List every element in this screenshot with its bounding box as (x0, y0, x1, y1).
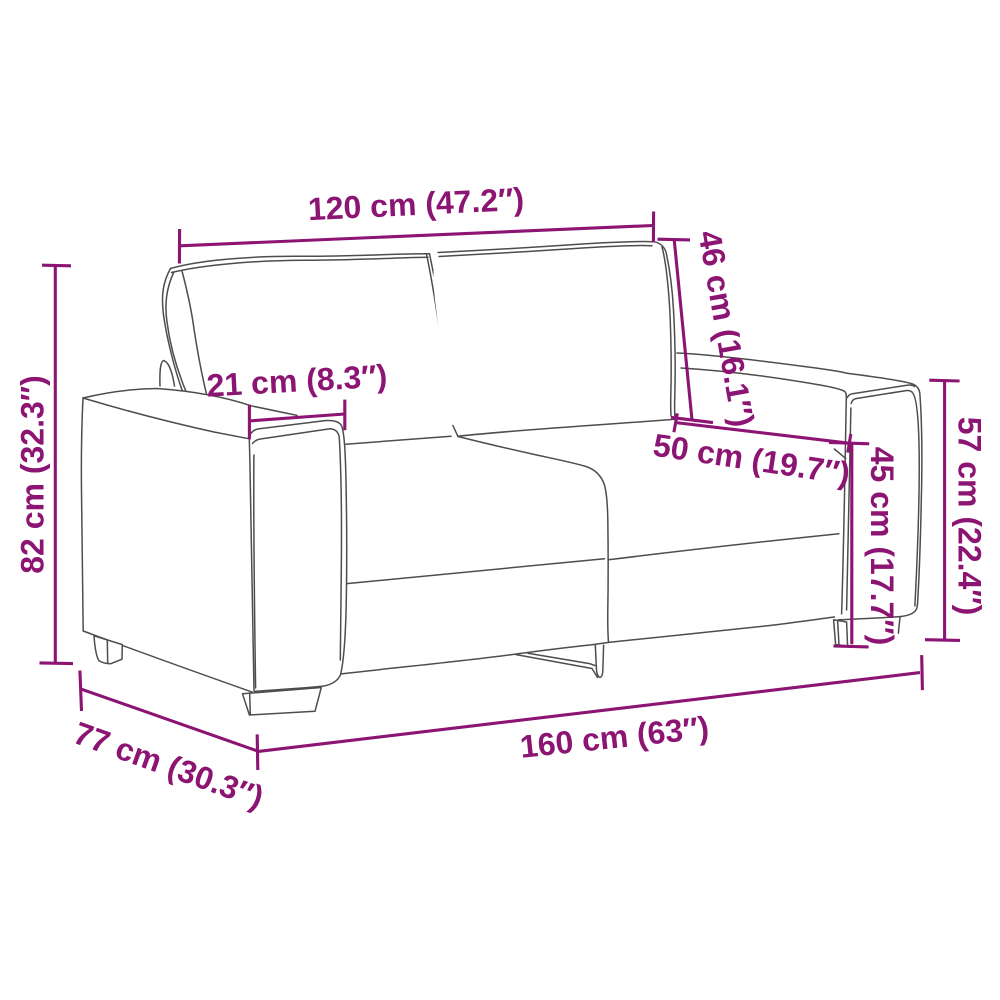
svg-text:46 cm (16.1″): 46 cm (16.1″) (691, 228, 761, 430)
svg-text:120 cm (47.2″): 120 cm (47.2″) (307, 181, 525, 228)
svg-text:57 cm (22.4″): 57 cm (22.4″) (952, 417, 988, 616)
svg-text:45 cm (17.7″): 45 cm (17.7″) (864, 447, 900, 646)
svg-text:82 cm (32.3″): 82 cm (32.3″) (15, 375, 51, 574)
svg-text:77 cm (30.3″): 77 cm (30.3″) (69, 715, 268, 816)
